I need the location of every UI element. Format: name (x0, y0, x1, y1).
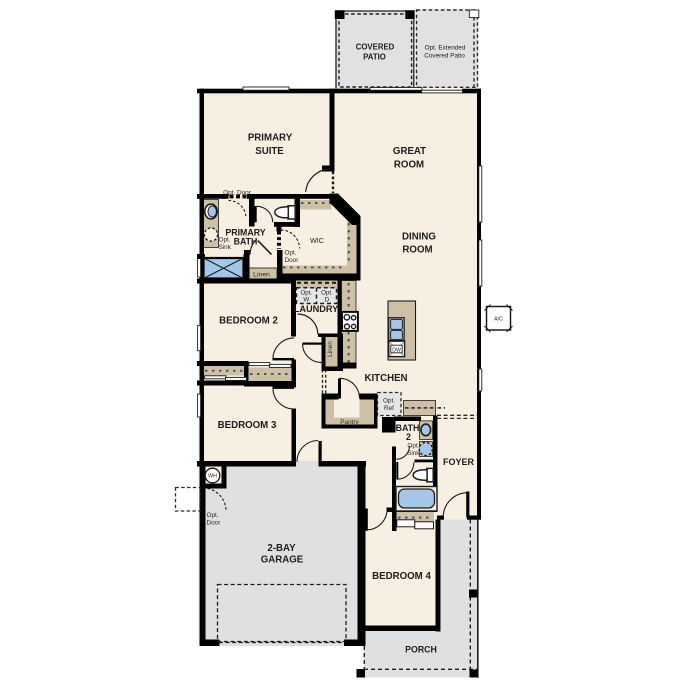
svg-text:PRIMARY: PRIMARY (248, 132, 293, 143)
svg-text:BATH: BATH (234, 236, 258, 246)
svg-text:Opt.: Opt. (407, 443, 419, 450)
svg-text:Linen: Linen (253, 272, 270, 279)
svg-text:Opt.: Opt. (219, 236, 231, 243)
svg-text:D: D (325, 296, 330, 303)
svg-text:Sink: Sink (407, 450, 420, 457)
svg-text:Pantry: Pantry (340, 419, 359, 426)
svg-text:Door: Door (285, 257, 300, 264)
svg-text:GARAGE: GARAGE (261, 554, 304, 565)
svg-text:PATIO: PATIO (363, 52, 386, 61)
svg-text:WIC: WIC (310, 236, 324, 245)
svg-text:PORCH: PORCH (405, 644, 437, 654)
svg-text:Opt.: Opt. (285, 250, 297, 257)
svg-text:KITCHEN: KITCHEN (364, 373, 407, 384)
svg-text:2: 2 (406, 432, 411, 442)
svg-text:2-BAY: 2-BAY (267, 543, 296, 554)
svg-text:ROOM: ROOM (402, 244, 432, 255)
svg-text:Ref: Ref (384, 405, 394, 412)
svg-text:Door: Door (207, 519, 222, 526)
svg-text:Linen: Linen (327, 341, 334, 357)
svg-text:LAUNDRY: LAUNDRY (294, 304, 339, 314)
svg-text:BEDROOM 3: BEDROOM 3 (218, 420, 277, 431)
svg-text:A/C: A/C (494, 316, 503, 322)
svg-text:FOYER: FOYER (443, 457, 475, 467)
svg-text:Opt.: Opt. (300, 289, 312, 296)
svg-text:WH: WH (208, 474, 217, 480)
svg-text:Opt.: Opt. (207, 512, 219, 519)
svg-text:COVERED: COVERED (356, 43, 395, 52)
svg-text:ROOM: ROOM (394, 159, 424, 170)
svg-text:GREAT: GREAT (393, 146, 426, 157)
svg-text:Opt.: Opt. (383, 397, 395, 404)
svg-text:Sink: Sink (219, 244, 232, 251)
svg-text:Covered Patio: Covered Patio (424, 53, 465, 60)
svg-text:DW: DW (392, 347, 401, 353)
svg-text:Opt. Door: Opt. Door (223, 189, 252, 196)
svg-text:DINING: DINING (402, 231, 436, 242)
svg-text:BEDROOM 4: BEDROOM 4 (372, 571, 431, 582)
svg-text:Opt.: Opt. (321, 289, 333, 296)
svg-text:BEDROOM 2: BEDROOM 2 (219, 315, 278, 326)
svg-text:W: W (303, 296, 309, 303)
svg-text:Opt. Extended: Opt. Extended (425, 44, 466, 51)
svg-text:SUITE: SUITE (255, 146, 284, 157)
